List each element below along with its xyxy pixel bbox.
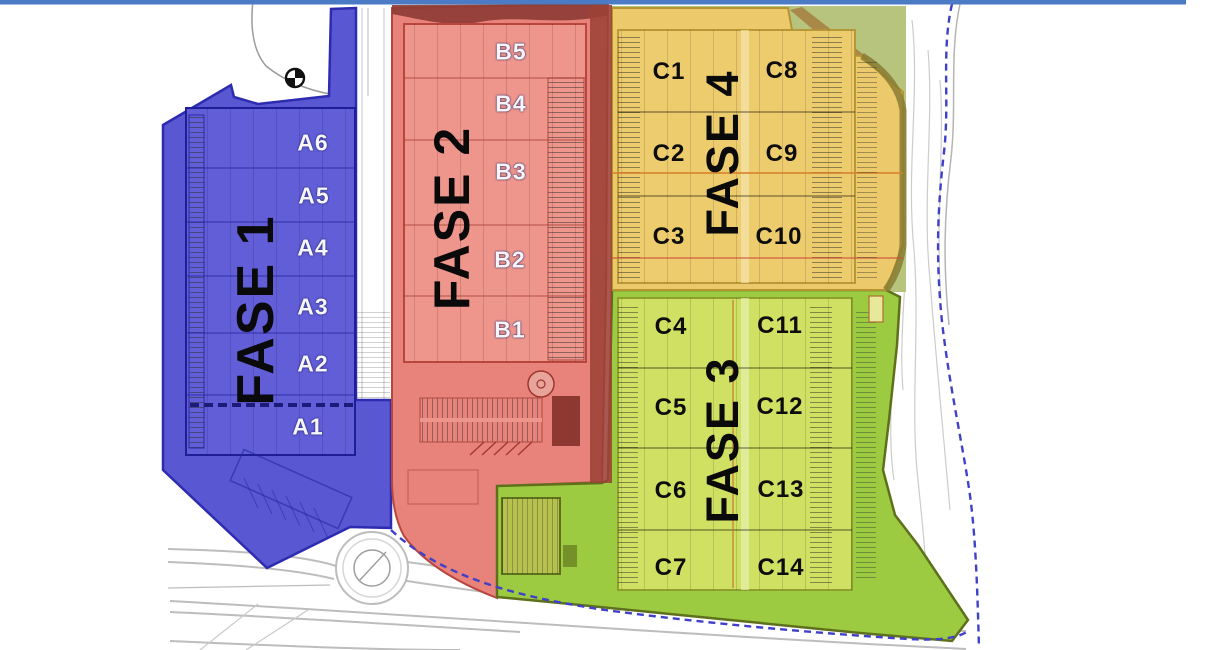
unit-label-c1: C1 [653,58,686,86]
phase-label-fase1: FASE 1 [226,214,286,405]
unit-label-a5: A5 [298,183,329,210]
site-plan-drawing [0,0,1218,650]
unit-label-a4: A4 [297,235,328,262]
unit-label-a2: A2 [297,351,328,378]
unit-label-c14: C14 [757,554,804,582]
tree-strip-center [590,5,612,483]
unit-label-b1: B1 [494,317,525,344]
unit-label-c10: C10 [755,223,802,251]
unit-label-c11: C11 [757,312,803,340]
unit-label-c5: C5 [655,394,688,422]
unit-label-b4: B4 [495,91,526,118]
unit-label-c2: C2 [653,140,686,168]
top-boundary-line [0,0,1186,5]
road-crosswalk [357,312,390,400]
unit-label-a6: A6 [297,130,328,157]
phase-label-fase4: FASE 4 [697,69,749,236]
roundabout [336,532,408,604]
unit-label-c8: C8 [766,57,799,85]
phase-label-fase3: FASE 3 [697,356,749,523]
unit-label-c9: C9 [766,140,799,168]
unit-label-a3: A3 [297,294,328,321]
unit-label-b3: B3 [495,159,526,186]
unit-label-c13: C13 [757,476,804,504]
phase-label-fase2: FASE 2 [423,126,481,310]
unit-label-c6: C6 [655,477,688,505]
unit-label-c3: C3 [653,223,686,251]
unit-label-c12: C12 [756,393,803,421]
unit-label-b5: B5 [495,39,526,66]
north-compass-icon [286,69,304,87]
unit-label-c4: C4 [655,313,688,341]
unit-label-c7: C7 [655,554,688,582]
unit-label-a1: A1 [292,414,323,441]
site-plan: FASE 1 FASE 2 FASE 3 FASE 4 A6 A5 A4 A3 … [0,0,1218,650]
unit-label-b2: B2 [494,247,525,274]
